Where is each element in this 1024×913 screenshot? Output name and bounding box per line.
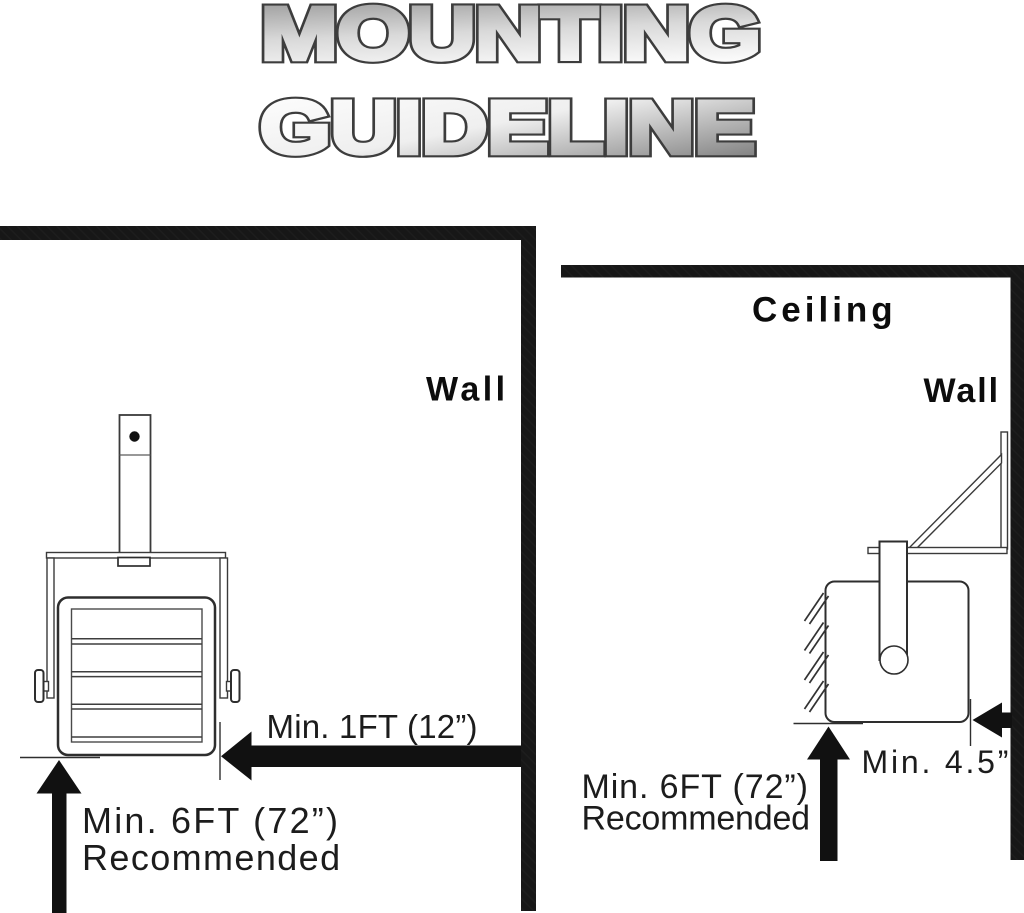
- svg-text:Wall: Wall: [924, 372, 1001, 410]
- svg-text:Recommended: Recommended: [582, 800, 810, 838]
- svg-text:Min. 1FT (12”): Min. 1FT (12”): [267, 708, 478, 745]
- svg-text:Ceiling: Ceiling: [752, 291, 897, 330]
- svg-text:Min. 6FT (72”): Min. 6FT (72”): [82, 800, 340, 841]
- svg-text:Wall: Wall: [426, 371, 509, 409]
- svg-text:Min. 4.5”: Min. 4.5”: [862, 744, 1012, 780]
- svg-text:Recommended: Recommended: [82, 837, 342, 878]
- svg-text:MOUNTING: MOUNTING: [261, 0, 761, 75]
- svg-text:GUIDELINE: GUIDELINE: [260, 86, 755, 169]
